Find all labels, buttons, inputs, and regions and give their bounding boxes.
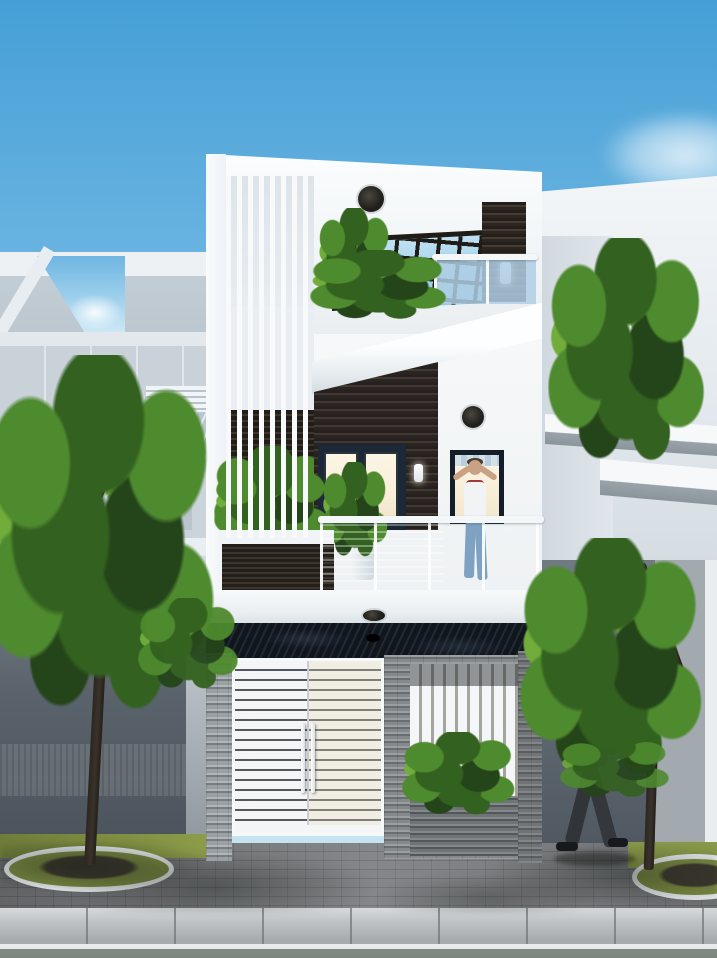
balcony-man-arm bbox=[478, 465, 498, 481]
road bbox=[0, 949, 717, 958]
left-neighbor-band bbox=[0, 332, 212, 346]
architectural-render-scene bbox=[0, 0, 717, 958]
balcony-glass-balustrade bbox=[320, 520, 542, 590]
fascia-downlight bbox=[363, 610, 385, 621]
pedestrian-shoe bbox=[556, 842, 578, 851]
curb-joints bbox=[0, 908, 717, 946]
gate-interior-glow bbox=[309, 661, 381, 825]
gate-handle bbox=[301, 723, 305, 793]
louver-window-shadow bbox=[410, 664, 518, 686]
main-house bbox=[206, 146, 542, 872]
gate-center-joint bbox=[307, 661, 309, 825]
roof-terrace-plants bbox=[310, 250, 460, 320]
louver-screen bbox=[226, 176, 314, 538]
wall-sconce bbox=[414, 464, 423, 482]
balcony-man-arm bbox=[452, 465, 472, 481]
balcony-man-tshirt bbox=[464, 482, 486, 518]
left-tree-lower-leaves bbox=[138, 598, 248, 690]
left-neighbor-stone-band bbox=[0, 744, 212, 796]
right-neighbor-trees bbox=[548, 238, 717, 464]
right-tree-lower-leaves bbox=[560, 736, 680, 798]
window-plants bbox=[402, 732, 526, 816]
gate-handle bbox=[311, 723, 315, 793]
stone-band-downlight bbox=[366, 634, 380, 642]
pedestrian-shadow bbox=[554, 852, 636, 866]
balcony-ceiling-light bbox=[462, 406, 484, 428]
pedestrian-shoe bbox=[608, 838, 628, 847]
entrance-gate bbox=[232, 658, 384, 836]
